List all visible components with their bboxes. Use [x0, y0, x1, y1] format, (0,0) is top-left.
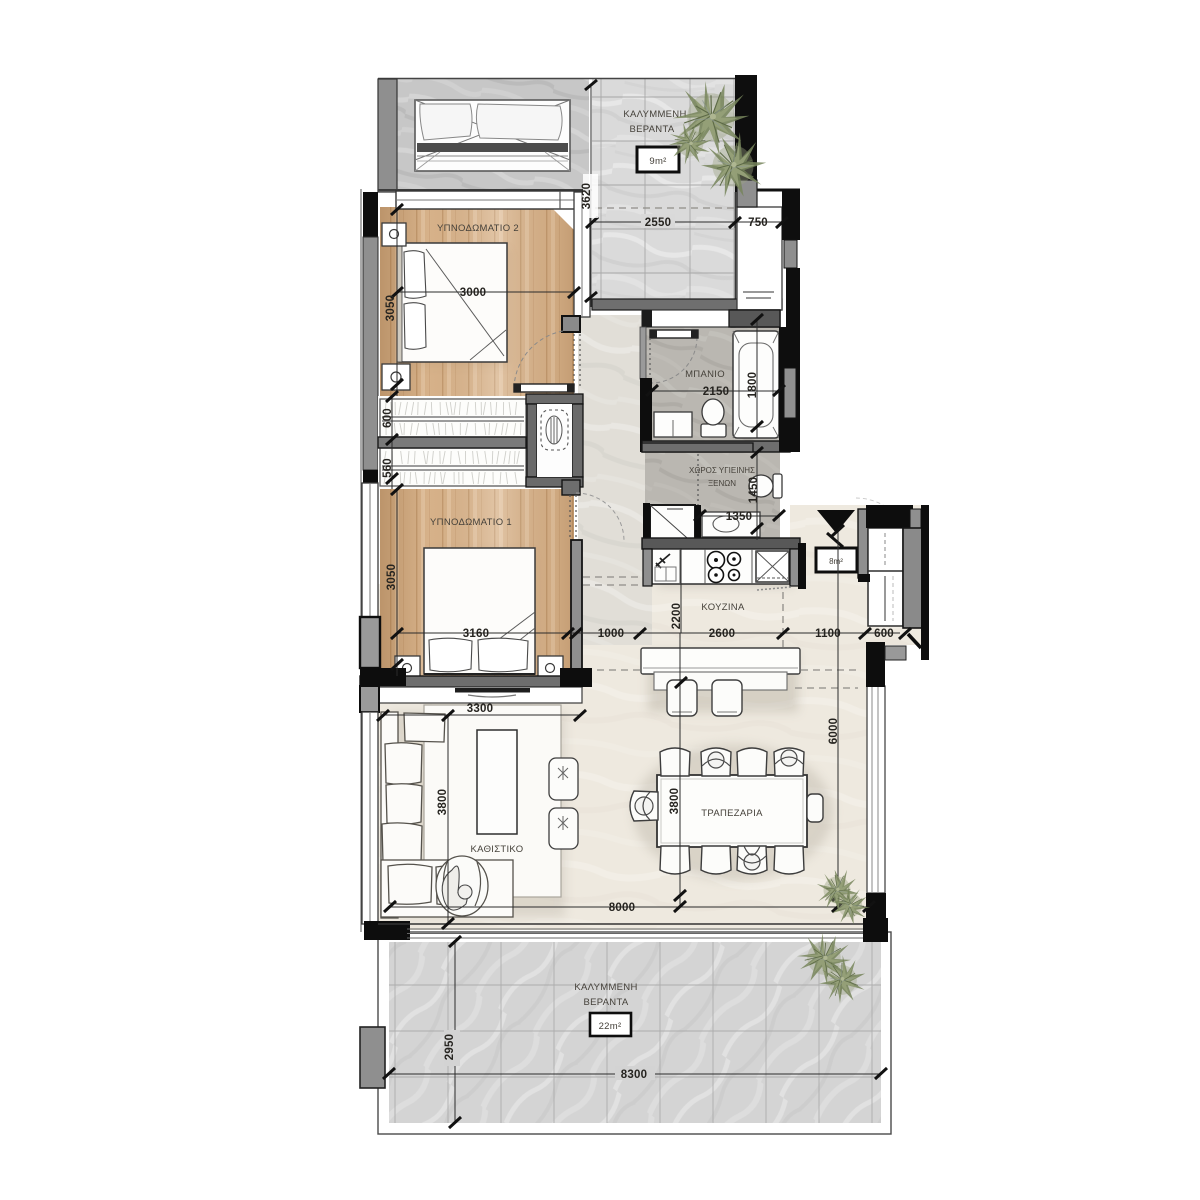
svg-text:ΞΕΝΩΝ: ΞΕΝΩΝ — [708, 479, 736, 488]
svg-text:ΤΡΑΠΕΖΑΡΙΑ: ΤΡΑΠΕΖΑΡΙΑ — [701, 808, 763, 819]
svg-text:ΒΕΡΑΝΤΑ: ΒΕΡΑΝΤΑ — [629, 124, 674, 135]
svg-text:ΒΕΡΑΝΤΑ: ΒΕΡΑΝΤΑ — [583, 997, 628, 1008]
svg-text:3800: 3800 — [437, 789, 449, 815]
svg-text:2200: 2200 — [671, 603, 683, 629]
svg-text:3300: 3300 — [467, 703, 493, 715]
svg-text:ΜΠΑΝΙΟ: ΜΠΑΝΙΟ — [685, 369, 725, 380]
svg-text:ΚΑΛΥΜΜΕΝΗ: ΚΑΛΥΜΜΕΝΗ — [574, 982, 637, 993]
svg-text:1350: 1350 — [726, 511, 752, 523]
svg-text:3620: 3620 — [581, 183, 593, 209]
svg-text:8000: 8000 — [609, 902, 635, 914]
svg-text:22m²: 22m² — [599, 1021, 622, 1032]
svg-text:1800: 1800 — [747, 372, 759, 398]
svg-text:3050: 3050 — [385, 295, 397, 321]
svg-text:750: 750 — [748, 217, 768, 229]
svg-text:6000: 6000 — [828, 718, 840, 744]
svg-text:2150: 2150 — [703, 386, 729, 398]
svg-text:3160: 3160 — [463, 628, 489, 640]
svg-text:8300: 8300 — [621, 1069, 647, 1081]
svg-text:9m²: 9m² — [649, 156, 666, 167]
svg-text:1450: 1450 — [748, 477, 760, 503]
svg-text:1000: 1000 — [598, 628, 624, 640]
svg-text:600: 600 — [382, 408, 394, 428]
svg-text:1100: 1100 — [815, 628, 841, 640]
svg-text:ΚΑΘΙΣΤΙΚΟ: ΚΑΘΙΣΤΙΚΟ — [471, 844, 524, 855]
svg-text:2550: 2550 — [645, 217, 671, 229]
svg-text:ΚΟΥΖΙΝΑ: ΚΟΥΖΙΝΑ — [701, 602, 745, 613]
svg-text:ΚΑΛΥΜΜΕΝΗ: ΚΑΛΥΜΜΕΝΗ — [623, 109, 686, 120]
svg-text:8m²: 8m² — [829, 557, 843, 566]
svg-text:560: 560 — [382, 458, 394, 478]
svg-text:ΥΠΝΟΔΩΜΑΤΙΟ 2: ΥΠΝΟΔΩΜΑΤΙΟ 2 — [437, 223, 519, 234]
svg-text:3800: 3800 — [669, 788, 681, 814]
svg-text:600: 600 — [874, 628, 894, 640]
svg-text:ΥΠΝΟΔΩΜΑΤΙΟ 1: ΥΠΝΟΔΩΜΑΤΙΟ 1 — [430, 517, 512, 528]
svg-text:3000: 3000 — [460, 287, 486, 299]
svg-text:ΧΩΡΟΣ ΥΓΙΕΙΝΗΣ: ΧΩΡΟΣ ΥΓΙΕΙΝΗΣ — [689, 466, 755, 475]
svg-text:2600: 2600 — [709, 628, 735, 640]
svg-text:2950: 2950 — [444, 1034, 456, 1060]
svg-text:3050: 3050 — [386, 564, 398, 590]
